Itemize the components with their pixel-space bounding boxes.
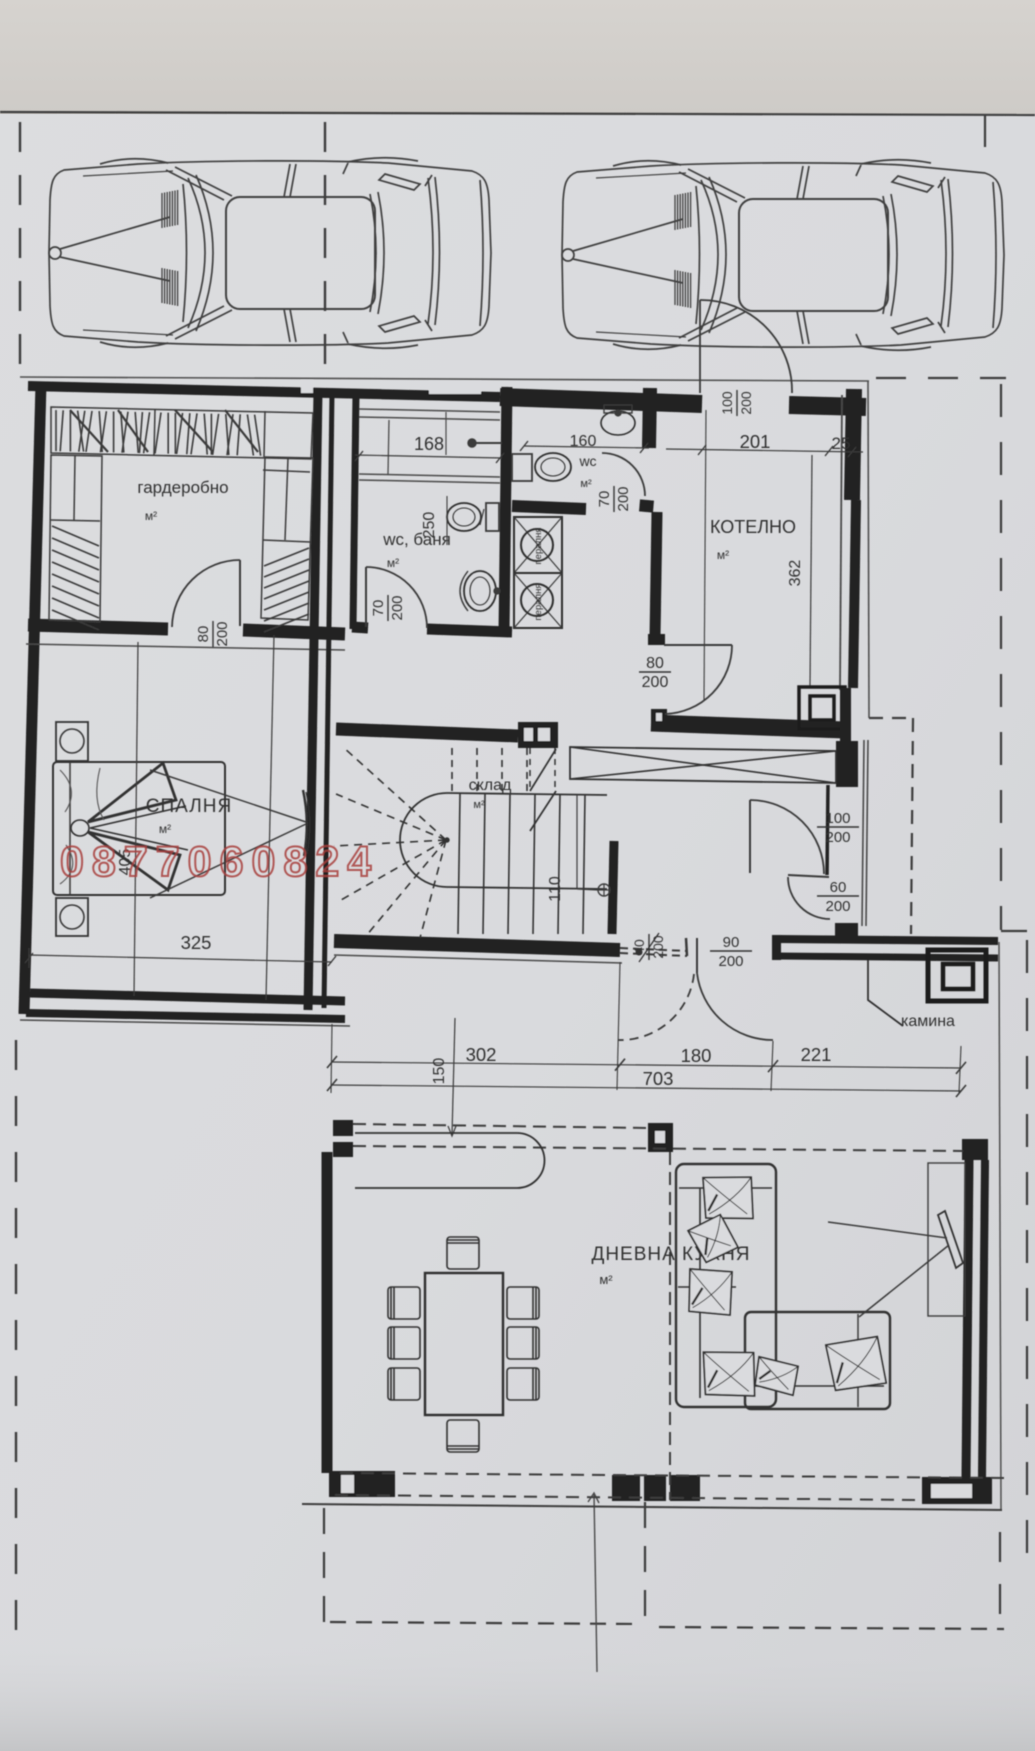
svg-text:200: 200: [650, 935, 666, 959]
svg-text:200: 200: [389, 595, 406, 620]
svg-text:180: 180: [681, 1045, 712, 1066]
svg-text:70: 70: [370, 600, 387, 617]
svg-text:302: 302: [466, 1044, 497, 1065]
svg-text:160: 160: [570, 433, 597, 450]
svg-text:325: 325: [181, 932, 212, 953]
svg-text:80: 80: [646, 655, 664, 672]
svg-text:гардеробно: гардеробно: [137, 478, 228, 497]
svg-text:362: 362: [787, 560, 804, 587]
svg-text:703: 703: [643, 1068, 674, 1089]
svg-text:пералня: пералня: [533, 584, 544, 621]
svg-text:80: 80: [195, 626, 212, 643]
svg-text:м²: м²: [159, 822, 171, 836]
svg-text:90: 90: [723, 934, 740, 951]
svg-text:60: 60: [830, 879, 847, 896]
svg-text:м²: м²: [599, 1272, 613, 1287]
svg-text:КОТЕЛНО: КОТЕЛНО: [710, 517, 796, 537]
svg-text:м²: м²: [145, 509, 157, 523]
svg-text:СПАЛНЯ: СПАЛНЯ: [146, 796, 232, 817]
svg-text:склад: склад: [469, 777, 512, 794]
svg-text:200: 200: [642, 674, 669, 691]
svg-text:200: 200: [825, 829, 850, 846]
svg-text:wc, баня: wc, баня: [382, 530, 451, 549]
svg-text:250: 250: [421, 512, 438, 539]
svg-text:100: 100: [825, 810, 850, 827]
svg-text:камина: камина: [901, 1013, 955, 1030]
svg-text:wc: wc: [578, 453, 596, 469]
svg-text:м²: м²: [580, 478, 592, 490]
svg-text:200: 200: [214, 621, 231, 646]
svg-text:168: 168: [414, 434, 444, 454]
svg-text:200: 200: [718, 953, 743, 970]
svg-text:70: 70: [596, 491, 613, 508]
svg-text:201: 201: [740, 431, 771, 452]
svg-text:200: 200: [738, 391, 754, 415]
svg-text:200: 200: [615, 486, 632, 511]
svg-text:м²: м²: [717, 548, 729, 562]
svg-text:200: 200: [825, 898, 850, 915]
svg-text:м²: м²: [473, 799, 485, 811]
svg-text:пералня: пералня: [533, 528, 544, 565]
svg-text:40: 40: [631, 939, 647, 955]
svg-text:25: 25: [832, 434, 851, 453]
svg-text:100: 100: [719, 391, 735, 415]
svg-text:м²: м²: [387, 556, 399, 570]
svg-text:110: 110: [547, 876, 564, 902]
svg-text:0877060824: 0877060824: [60, 838, 379, 886]
svg-text:150: 150: [431, 1058, 448, 1085]
svg-text:221: 221: [801, 1044, 832, 1065]
